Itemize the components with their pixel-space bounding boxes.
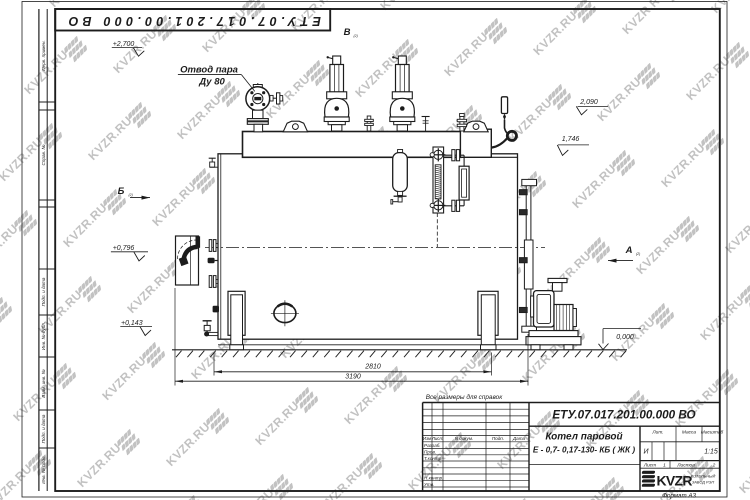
svg-text:Инв. № подл.: Инв. № подл. <box>41 455 46 484</box>
svg-text:0,000: 0,000 <box>616 334 634 341</box>
svg-text:Котел паровой: Котел паровой <box>545 432 622 443</box>
svg-text:KVZR.RU: KVZR.RU <box>0 221 21 271</box>
svg-text:1: 1 <box>663 463 666 469</box>
svg-text:Т.контр.: Т.контр. <box>424 456 443 461</box>
svg-text:KVZR.RU: KVZR.RU <box>124 266 174 316</box>
svg-text:+0,796: +0,796 <box>113 245 135 252</box>
svg-text:Лит.: Лит. <box>651 430 663 436</box>
svg-text:Отвод пара: Отвод пара <box>180 65 238 76</box>
svg-text:Справ. №: Справ. № <box>41 145 46 166</box>
svg-text:(2): (2) <box>636 252 640 256</box>
svg-text:KVZR.RU: KVZR.RU <box>149 179 199 229</box>
svg-text:Все размеры для справок: Все размеры для справок <box>426 393 504 401</box>
svg-text:KVZR.RU: KVZR.RU <box>377 0 427 13</box>
svg-text:KVZR.RU: KVZR.RU <box>441 29 491 79</box>
svg-text:Ду 80: Ду 80 <box>198 77 225 88</box>
svg-text:ЕТУ.07.017.201.00.000 ВО: ЕТУ.07.017.201.00.000 ВО <box>65 14 321 28</box>
svg-text:KVZR.RU: KVZR.RU <box>569 161 619 211</box>
svg-text:KVZR.RU: KVZR.RU <box>594 74 644 124</box>
svg-text:Лист: Лист <box>431 436 444 441</box>
svg-text:Б: Б <box>118 186 125 197</box>
svg-text:Подп.: Подп. <box>492 436 504 441</box>
svg-text:Взам. инв. №: Взам. инв. № <box>41 369 46 397</box>
svg-text:КОТЕЛЬНЫЙ: КОТЕЛЬНЫЙ <box>691 474 716 479</box>
svg-text:KVZR.RU: KVZR.RU <box>60 200 110 250</box>
svg-text:Подп. и дата: Подп. и дата <box>41 277 46 306</box>
svg-text:KVZR.RU: KVZR.RU <box>683 53 733 103</box>
svg-text:KVZR.RU: KVZR.RU <box>722 206 750 256</box>
svg-text:N докум.: N докум. <box>455 436 474 441</box>
svg-text:KVZR.RU: KVZR.RU <box>736 446 750 496</box>
svg-text:Листов: Листов <box>676 463 695 469</box>
svg-text:(2): (2) <box>129 193 133 197</box>
svg-text:+0,143: +0,143 <box>121 320 143 327</box>
svg-text:KVZR.RU: KVZR.RU <box>174 92 224 142</box>
svg-text:2810: 2810 <box>364 364 381 371</box>
svg-text:KVZR.RU: KVZR.RU <box>10 374 60 424</box>
svg-text:KVZR.RU: KVZR.RU <box>316 464 366 500</box>
svg-text:В: В <box>344 27 351 38</box>
svg-text:KVZR.RU: KVZR.RU <box>163 419 213 469</box>
svg-text:Дата: Дата <box>512 436 526 441</box>
svg-text:KVZR.RU: KVZR.RU <box>85 113 135 163</box>
svg-text:KVZR.RU: KVZR.RU <box>21 47 71 97</box>
svg-text:KVZR.RU: KVZR.RU <box>74 440 124 490</box>
svg-text:KVZR.RU: KVZR.RU <box>530 8 580 58</box>
svg-text:Е - 0,7- 0,17-130- КБ ( ЖК ): Е - 0,7- 0,17-130- КБ ( ЖК ) <box>533 446 635 455</box>
svg-text:1:15: 1:15 <box>704 449 718 456</box>
svg-text:Формат А3: Формат А3 <box>662 493 696 500</box>
svg-text:ЗАВОД РЭП: ЗАВОД РЭП <box>692 480 715 485</box>
svg-text:KVZR.RU: KVZR.RU <box>619 0 669 37</box>
svg-text:Пров.: Пров. <box>424 449 436 454</box>
svg-text:Лист: Лист <box>643 463 656 469</box>
svg-text:Н.контр.: Н.контр. <box>424 476 443 481</box>
svg-text:(2): (2) <box>354 34 358 38</box>
svg-text:KVZR.RU: KVZR.RU <box>99 353 149 403</box>
svg-text:KVZR: KVZR <box>657 473 693 489</box>
svg-text:И: И <box>643 449 649 456</box>
svg-text:Масса: Масса <box>682 430 697 436</box>
svg-text:1,746: 1,746 <box>562 136 580 143</box>
svg-text:KVZR.RU: KVZR.RU <box>708 0 750 16</box>
svg-text:+2,700: +2,700 <box>113 41 135 48</box>
svg-text:KVZR.RU: KVZR.RU <box>672 380 722 430</box>
svg-text:KVZR.RU: KVZR.RU <box>227 485 277 500</box>
svg-text:KVZR.RU: KVZR.RU <box>341 377 391 427</box>
svg-text:Перв. примен.: Перв. примен. <box>41 40 46 71</box>
svg-text:Разраб.: Разраб. <box>424 443 441 448</box>
svg-text:2,090: 2,090 <box>579 99 598 106</box>
svg-text:Утв.: Утв. <box>424 482 434 487</box>
svg-text:KVZR.RU: KVZR.RU <box>0 0 7 31</box>
svg-text:KVZR.RU: KVZR.RU <box>633 227 683 277</box>
svg-text:Масштаб: Масштаб <box>701 430 724 436</box>
svg-text:KVZR.RU: KVZR.RU <box>252 398 302 448</box>
svg-text:KVZR.RU: KVZR.RU <box>658 140 708 190</box>
svg-text:Инв. № дубл.: Инв. № дубл. <box>41 322 46 350</box>
svg-text:ЕТУ.07.017.201.00.000 ВО: ЕТУ.07.017.201.00.000 ВО <box>552 408 695 421</box>
svg-text:А: А <box>625 245 633 256</box>
svg-text:2: 2 <box>712 463 716 469</box>
svg-text:KVZR.RU: KVZR.RU <box>697 293 747 343</box>
svg-text:KVZR.RU: KVZR.RU <box>0 461 35 500</box>
svg-text:3190: 3190 <box>345 373 361 380</box>
svg-text:Изм: Изм <box>423 436 431 441</box>
svg-text:Подп. и дата: Подп. и дата <box>41 414 46 443</box>
svg-text:KVZR.RU: KVZR.RU <box>505 95 555 145</box>
